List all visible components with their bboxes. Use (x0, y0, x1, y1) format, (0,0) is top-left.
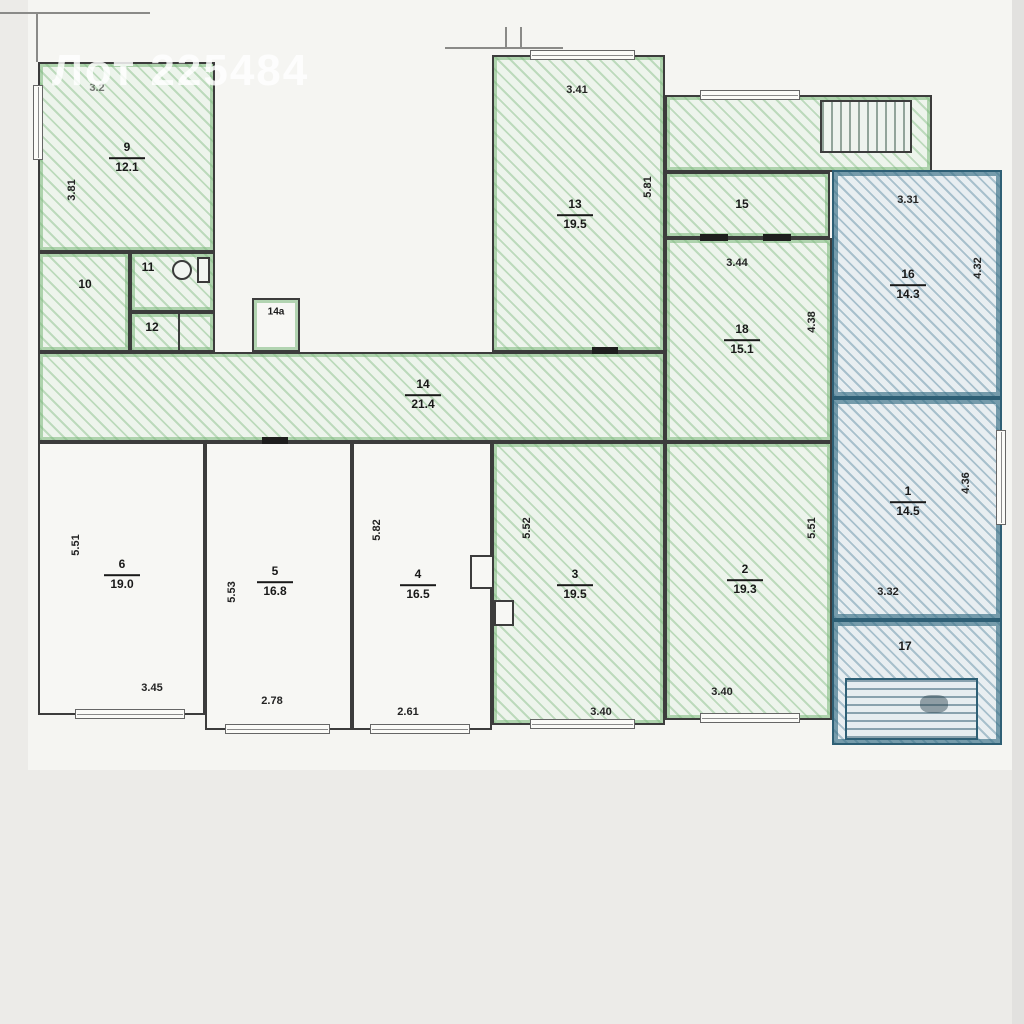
room-18-label: 18 15.1 (724, 323, 760, 357)
fraction-bar (727, 579, 763, 581)
room-2-label: 2 19.3 (727, 563, 763, 597)
dim-room4-left: 5.82 (371, 519, 383, 540)
room-area: 19.0 (110, 578, 133, 592)
fraction-bar (557, 584, 593, 586)
dim-room18-right: 4.38 (806, 311, 818, 332)
room-4-label: 4 16.5 (400, 568, 436, 602)
dim-room16-right: 4.32 (972, 257, 984, 278)
window (33, 85, 43, 160)
room-number: 9 (124, 141, 131, 155)
dim-room18-top: 3.44 (726, 257, 747, 269)
dim-room3-bottom: 3.40 (590, 706, 611, 718)
room-number: 1 (905, 485, 912, 499)
door-mark (700, 234, 728, 241)
staircase-lower (845, 678, 978, 740)
room-12-region (130, 312, 215, 352)
door-mark (262, 437, 288, 444)
room-area: 15.1 (730, 343, 753, 357)
room-10-label: 10 (78, 278, 91, 292)
dim-room9-left: 3.81 (66, 179, 78, 200)
room-number: 11 (142, 261, 155, 275)
window (530, 50, 635, 60)
room-number: 14а (268, 306, 285, 318)
wall-niche (470, 555, 494, 589)
window (700, 90, 800, 100)
dim-room5-bottom: 2.78 (261, 695, 282, 707)
room-13-label: 13 19.5 (557, 198, 593, 232)
fraction-bar (405, 394, 441, 396)
room-area: 12.1 (115, 161, 138, 175)
lot-watermark: Лот 225484 (52, 46, 309, 96)
dim-room6-left: 5.51 (70, 534, 82, 555)
fraction-bar (257, 581, 293, 583)
staircase-upper (820, 100, 912, 153)
room-area: 16.8 (263, 585, 286, 599)
extension-line (36, 14, 38, 62)
room-number: 13 (568, 198, 581, 212)
room-15-label: 15 (735, 198, 748, 212)
room-3-label: 3 19.5 (557, 568, 593, 602)
room-area: 14.5 (896, 505, 919, 519)
room-number: 3 (572, 568, 579, 582)
room-12-label: 12 (145, 321, 158, 335)
fraction-bar (890, 284, 926, 286)
room-area: 19.5 (563, 588, 586, 602)
room-number: 16 (901, 268, 914, 282)
room-16-label: 16 14.3 (890, 268, 926, 302)
door-mark (763, 234, 791, 241)
fraction-bar (557, 214, 593, 216)
door-mark (592, 347, 618, 354)
room-area: 16.5 (406, 588, 429, 602)
corridor-14-region (38, 352, 665, 442)
extension-line (0, 12, 150, 14)
room-1-label: 1 14.5 (890, 485, 926, 519)
dim-room3-left: 5.52 (521, 517, 533, 538)
scanned-floorplan-page: 9 12.1 10 11 12 14а 13 19.5 15 18 15.1 (0, 0, 1024, 1024)
room-area: 14.3 (896, 288, 919, 302)
room-number: 17 (898, 640, 911, 654)
dim-room13-top: 3.41 (566, 84, 587, 96)
dim-room6-bottom: 3.45 (141, 682, 162, 694)
room-6-label: 6 19.0 (104, 558, 140, 592)
room-10-region (38, 252, 130, 352)
dim-room2-bottom: 3.40 (711, 686, 732, 698)
room-area: 21.4 (411, 398, 434, 412)
room-14-label: 14 21.4 (405, 378, 441, 412)
room-11-label: 11 (142, 261, 155, 275)
window (700, 713, 800, 723)
room-number: 18 (735, 323, 748, 337)
dim-room16-top: 3.31 (897, 194, 918, 206)
fraction-bar (724, 339, 760, 341)
interior-wall (178, 312, 180, 352)
room-number: 10 (78, 278, 91, 292)
floorplan: 9 12.1 10 11 12 14а 13 19.5 15 18 15.1 (0, 0, 1024, 1024)
window (530, 719, 635, 729)
dim-room4-bottom: 2.61 (397, 706, 418, 718)
fraction-bar (400, 584, 436, 586)
room-number: 15 (735, 198, 748, 212)
room-5-label: 5 16.8 (257, 565, 293, 599)
wall-niche (494, 600, 514, 626)
extension-line (445, 47, 563, 49)
room-number: 2 (742, 563, 749, 577)
toilet-icon (172, 260, 192, 280)
extension-line (505, 27, 507, 47)
room-9-label: 9 12.1 (109, 141, 145, 175)
window (370, 724, 470, 734)
fraction-bar (104, 574, 140, 576)
room-number: 12 (145, 321, 158, 335)
room-number: 14 (416, 378, 429, 392)
room-number: 5 (272, 565, 279, 579)
window (225, 724, 330, 734)
room-area: 19.3 (733, 583, 756, 597)
room-number: 6 (119, 558, 126, 572)
window (75, 709, 185, 719)
extension-line (520, 27, 522, 47)
room-17-label: 17 (898, 640, 911, 654)
room-number: 4 (415, 568, 422, 582)
fraction-bar (109, 157, 145, 159)
dim-room13-right: 5.81 (642, 176, 654, 197)
room-14a-label: 14а (268, 306, 285, 318)
sink-icon (197, 257, 210, 283)
window (996, 430, 1006, 525)
room-area: 19.5 (563, 218, 586, 232)
fraction-bar (890, 501, 926, 503)
dim-room1-right: 4.36 (960, 472, 972, 493)
dim-room2-right: 5.51 (806, 517, 818, 538)
dim-room5-left: 5.53 (226, 581, 238, 602)
dim-room1-bottom: 3.32 (877, 586, 898, 598)
scan-smudge (920, 695, 948, 713)
